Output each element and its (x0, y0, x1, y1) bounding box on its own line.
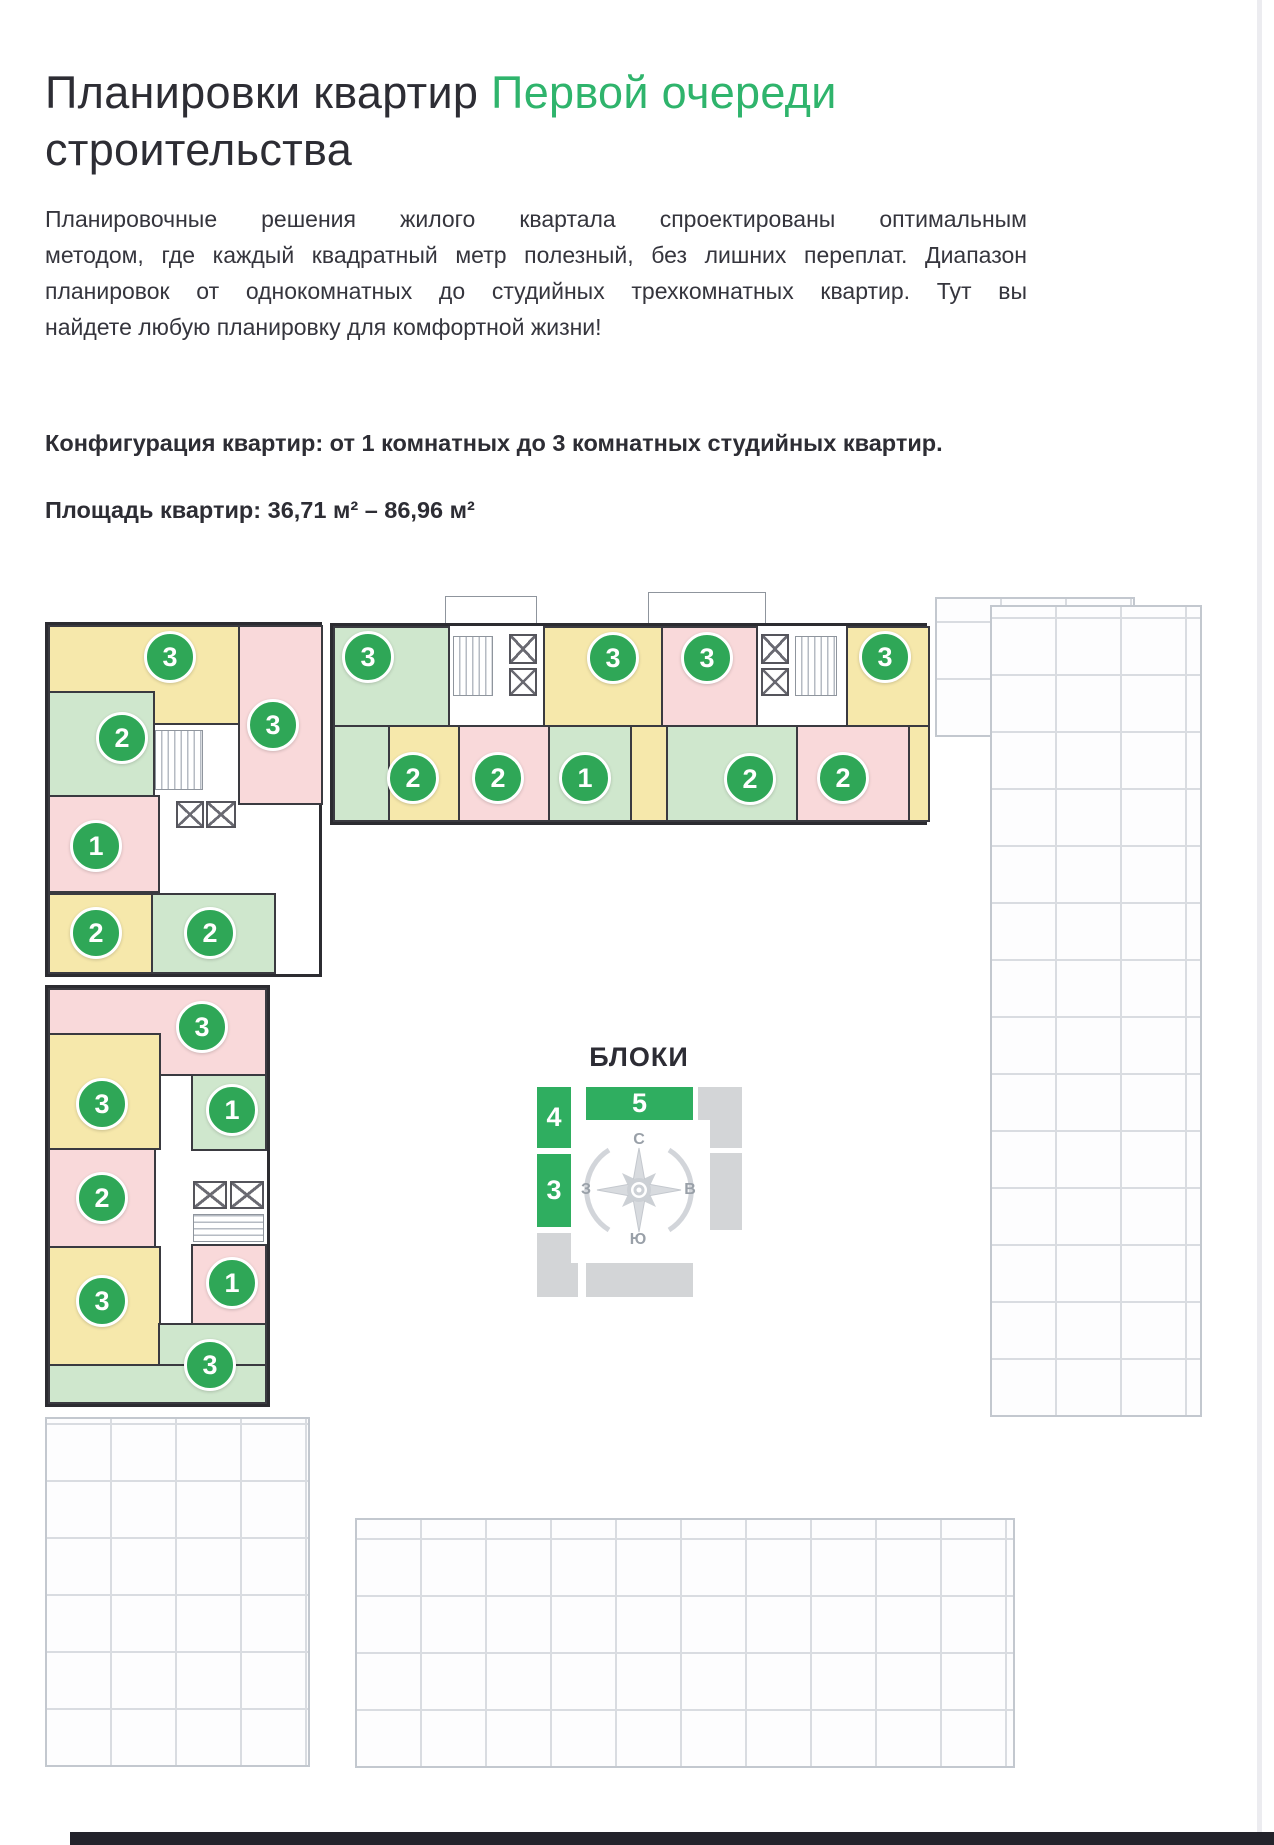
apartment-3room-green-lower (333, 725, 390, 822)
stair-protrusion (648, 592, 766, 625)
apartment-badge-block5-yellow: 3 (587, 632, 639, 684)
gray-floorplan-bottom (355, 1518, 1015, 1768)
legend-gray-block (710, 1120, 742, 1148)
compass-west-label: З (575, 1181, 597, 1199)
elevator-shaft (761, 668, 789, 696)
next-page-edge (70, 1832, 1274, 1845)
stairwell (193, 1214, 264, 1242)
apartment-badge-block3-pink: 3 (176, 1001, 228, 1053)
legend-block-3: 3 (537, 1154, 571, 1227)
apartment-badge-block3-yellow: 3 (76, 1275, 128, 1327)
apartment-badge-block4-green: 2 (184, 907, 236, 959)
stairwell (453, 636, 493, 696)
gray-floorplan-left-lower (45, 1417, 310, 1767)
elevator-shaft (193, 1181, 227, 1209)
apartment-badge-block4-pink: 1 (70, 820, 122, 872)
apartment-badge-block5-pink: 3 (681, 632, 733, 684)
legend-gray-block (710, 1153, 742, 1230)
elevator-shaft (509, 634, 537, 664)
legend-gray-block (698, 1087, 742, 1120)
legend-block-4-label: 4 (546, 1102, 561, 1133)
apartment-badge-block3-green: 3 (184, 1339, 236, 1391)
stairwell (795, 636, 837, 696)
legend-block-3-label: 3 (546, 1175, 561, 1206)
apartment-badge-block5-yellow: 2 (387, 752, 439, 804)
apartment-badge-block5-green: 1 (559, 752, 611, 804)
apartment-badge-block3-green: 1 (206, 1084, 258, 1136)
legend-block-4: 4 (537, 1087, 571, 1148)
legend-gray-block (537, 1263, 578, 1297)
apartment-badge-block4-yellow: 3 (144, 631, 196, 683)
legend-title: БЛОКИ (579, 1042, 699, 1073)
document-page: Планировки квартир Первой очереди строит… (0, 0, 1274, 1845)
apartment-badge-block3-pink: 1 (206, 1257, 258, 1309)
elevator-shaft (230, 1181, 264, 1209)
stair-protrusion (445, 596, 537, 625)
apartment-badge-block3-yellow: 3 (76, 1078, 128, 1130)
apartment-badge-block4-green: 2 (96, 712, 148, 764)
compass-east-label: В (679, 1181, 701, 1199)
apartment-badge-block5-green: 3 (342, 631, 394, 683)
compass-south-label: Ю (627, 1231, 649, 1249)
apartment-badge-block4-yellow: 2 (70, 907, 122, 959)
gray-floorplan-right-tower (990, 605, 1202, 1417)
apartment-badge-block5-green: 2 (724, 753, 776, 805)
legend-block-5-label: 5 (632, 1088, 647, 1119)
elevator-shaft (761, 634, 789, 664)
apartment-badge-block3-pink: 2 (76, 1172, 128, 1224)
page-edge-strip (1257, 0, 1262, 1845)
apartment-badge-block5-yellow: 3 (859, 631, 911, 683)
stairwell (155, 730, 203, 790)
elevator-shaft (176, 801, 204, 828)
apartment-badge-block5-pink: 2 (472, 752, 524, 804)
apartment-badge-block4-pink: 3 (247, 699, 299, 751)
compass-north-label: С (628, 1131, 650, 1149)
apartment-badge-block5-pink: 2 (817, 752, 869, 804)
legend-gray-block (586, 1263, 693, 1297)
elevator-shaft (509, 668, 537, 696)
apartment-yellow-mid (630, 725, 668, 822)
legend-block-5: 5 (586, 1087, 693, 1120)
elevator-shaft (206, 801, 236, 828)
floor-plan: 3321223333221223312133 БЛОКИ 4 5 3 (0, 0, 1274, 1845)
